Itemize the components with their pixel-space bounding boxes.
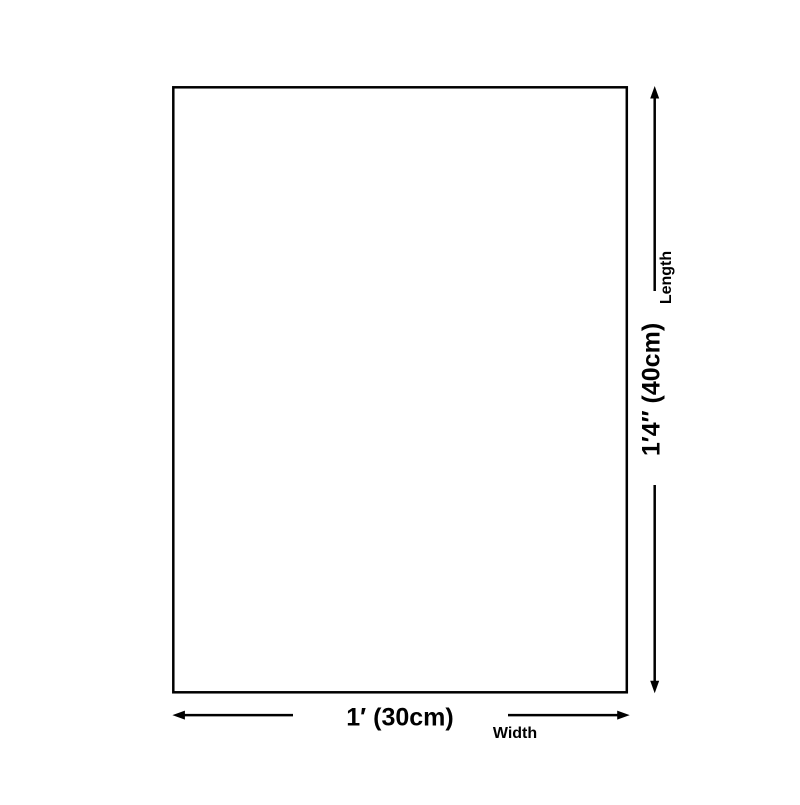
svg-text:Length: Length <box>658 251 675 304</box>
svg-text:Width: Width <box>493 725 537 742</box>
svg-text:1′4″ (40cm): 1′4″ (40cm) <box>638 323 666 456</box>
svg-text:1′ (30cm): 1′ (30cm) <box>346 704 453 732</box>
